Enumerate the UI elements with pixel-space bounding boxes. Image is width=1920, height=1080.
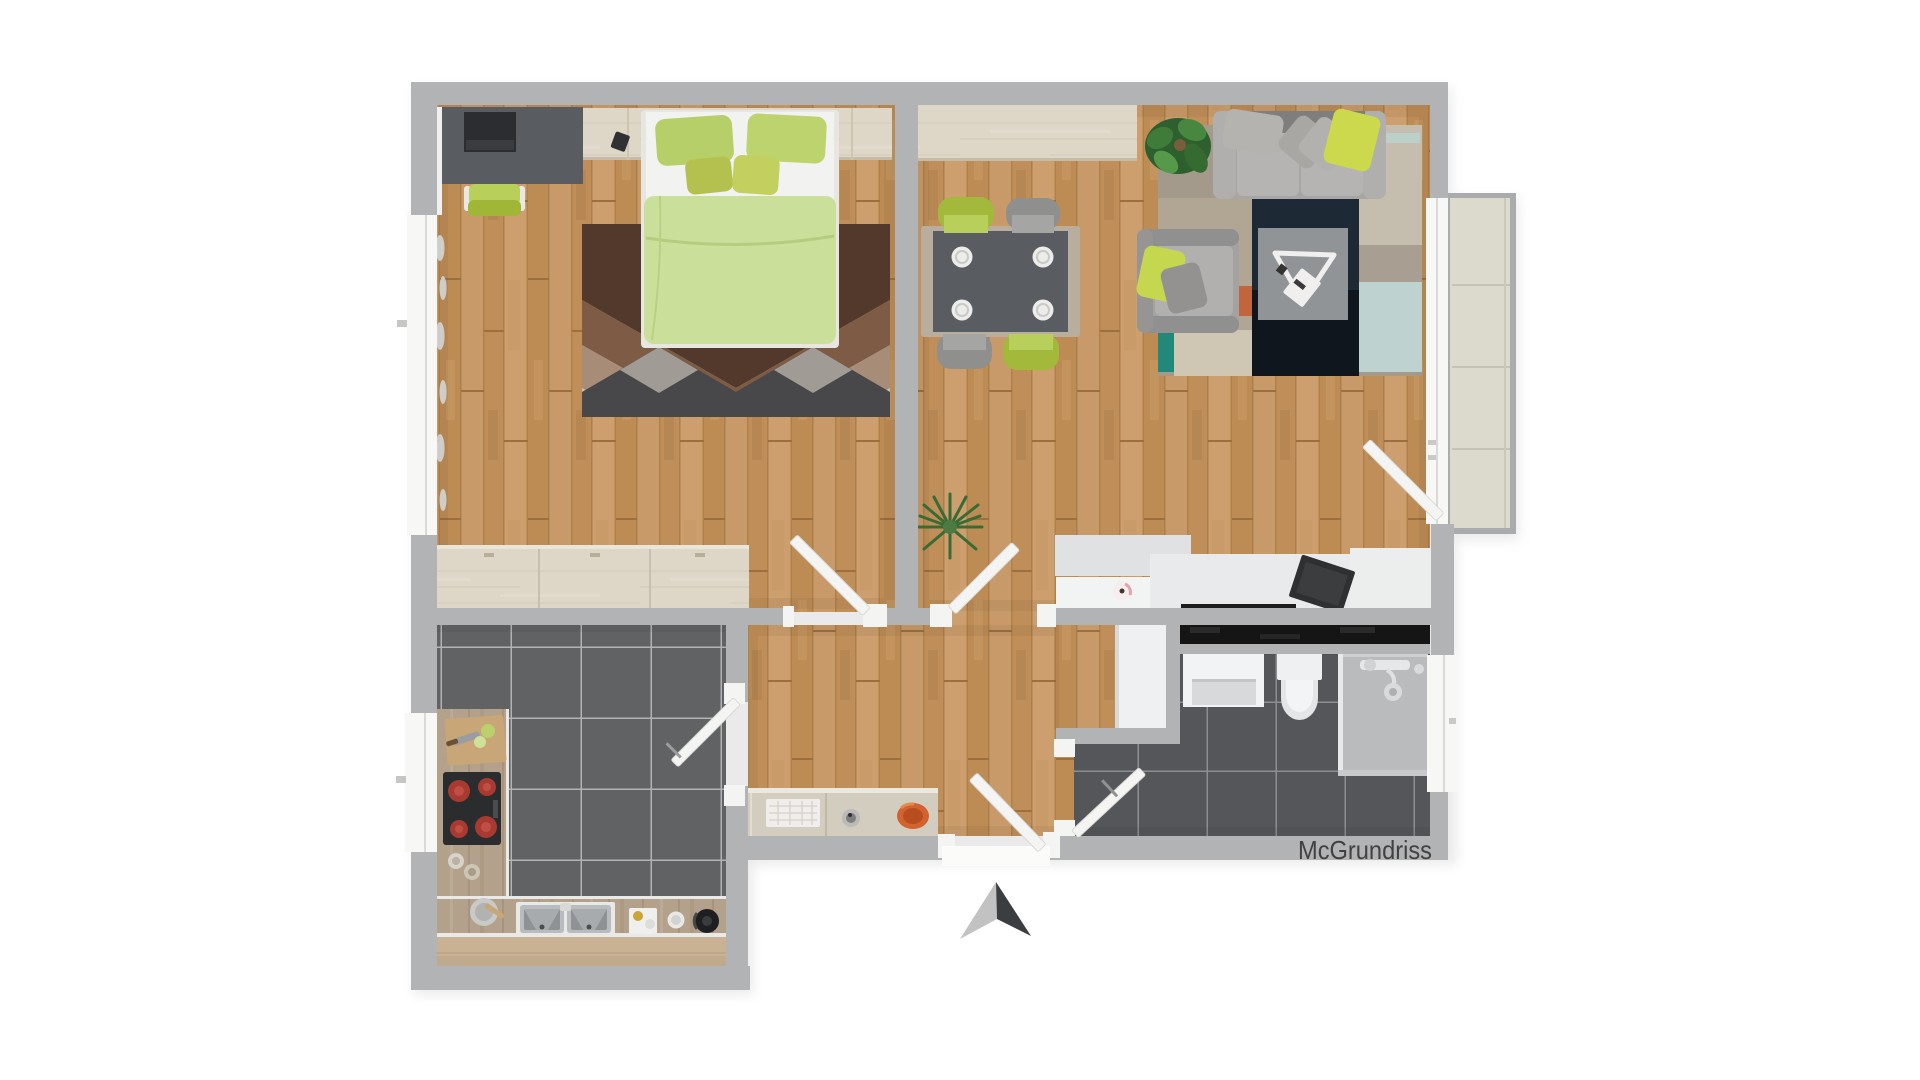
svg-text:McGrundriss: McGrundriss (1298, 835, 1432, 865)
